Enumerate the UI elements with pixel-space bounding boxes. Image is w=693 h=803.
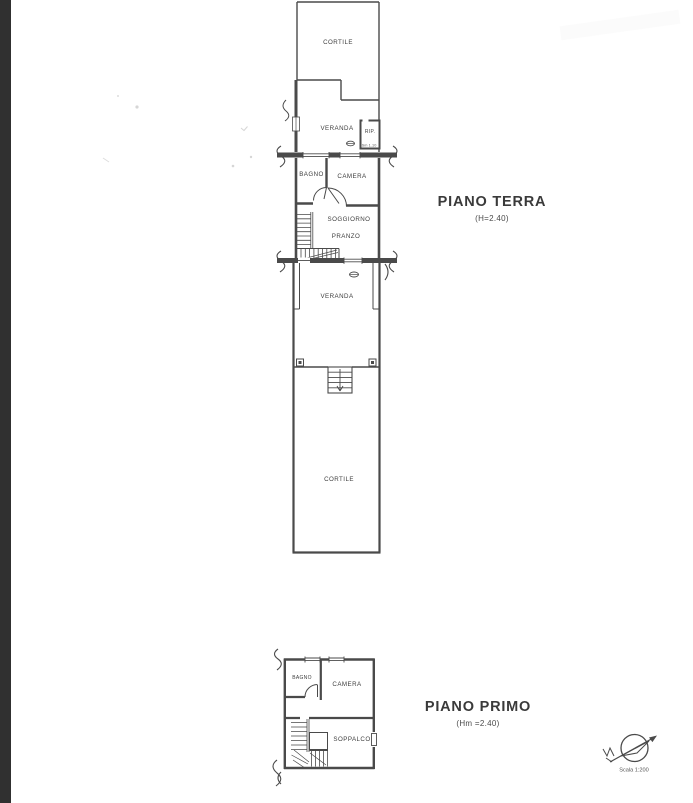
wall-break-hook (283, 100, 289, 121)
scale-label: Scala 1:200 (619, 768, 649, 774)
staircase-first-floor (291, 719, 328, 768)
vent-symbol (347, 141, 355, 146)
wall-break-hook (273, 649, 281, 786)
north-arrow-head (649, 736, 657, 743)
pillar (297, 359, 304, 366)
soggiorno-label: SOGGIORNO (328, 216, 371, 223)
window-opening (305, 656, 320, 663)
rip-label: RIP. (365, 129, 375, 135)
bagno-ff-label: BAGNO (292, 675, 312, 681)
piano-primo-height-note: (Hm =2.40) (456, 719, 499, 728)
first-floor-plan: BAGNO CAMERA SOPPALCO (273, 649, 377, 786)
first-floor-title: PIANO PRIMO (Hm =2.40) (425, 699, 531, 728)
veranda-lower-inner-lines (294, 263, 380, 309)
ground-floor-plan: RIP. Sm 1.10 VERANDA CORTILE (277, 2, 397, 553)
piano-terra-title: PIANO TERRA (438, 194, 547, 210)
stair-opening (300, 716, 309, 721)
rip-door-opening (363, 119, 369, 122)
window-opening (303, 152, 329, 158)
piano-terra-height-note: (H=2.40) (475, 214, 509, 223)
rip-size-label: Sm 1.10 (362, 144, 377, 148)
cortile-bottom-outline (293, 367, 381, 553)
bagno-ff-door-arc (305, 685, 318, 698)
veranda-top-label: VERANDA (320, 125, 353, 132)
cortile-bottom-label: CORTILE (324, 476, 354, 483)
ground-floor-title: PIANO TERRA (H=2.40) (438, 194, 547, 223)
bagno-gf-label: BAGNO (299, 171, 324, 178)
veranda-lower-walls (294, 263, 380, 367)
compass-scribble (603, 748, 614, 762)
north-arrow-flag (621, 741, 649, 756)
compass-rose: Scala 1:200 (603, 735, 657, 774)
camera-ff-label: CAMERA (332, 681, 362, 688)
piano-primo-title: PIANO PRIMO (425, 699, 531, 715)
window-opening (344, 258, 362, 264)
scanned-floor-plan-page: RIP. Sm 1.10 VERANDA CORTILE (0, 0, 693, 803)
soppalco-label: SOPPALCO (333, 736, 370, 743)
vent-symbol (350, 272, 359, 277)
cortile-top-label: CORTILE (323, 39, 353, 46)
bagno-door-arc (314, 188, 327, 201)
camera-gf-label: CAMERA (337, 173, 367, 180)
exterior-steps (328, 367, 352, 393)
internal-walls (296, 204, 379, 206)
window-opening (340, 152, 360, 158)
floor-plan-drawing: RIP. Sm 1.10 VERANDA CORTILE (0, 0, 693, 803)
pillar (369, 359, 376, 366)
scan-artifacts (103, 10, 680, 168)
window-opening (329, 656, 344, 663)
camera-door-arc (328, 188, 347, 207)
veranda-bottom-label: VERANDA (320, 293, 353, 300)
pranzo-label: PRANZO (332, 233, 360, 240)
